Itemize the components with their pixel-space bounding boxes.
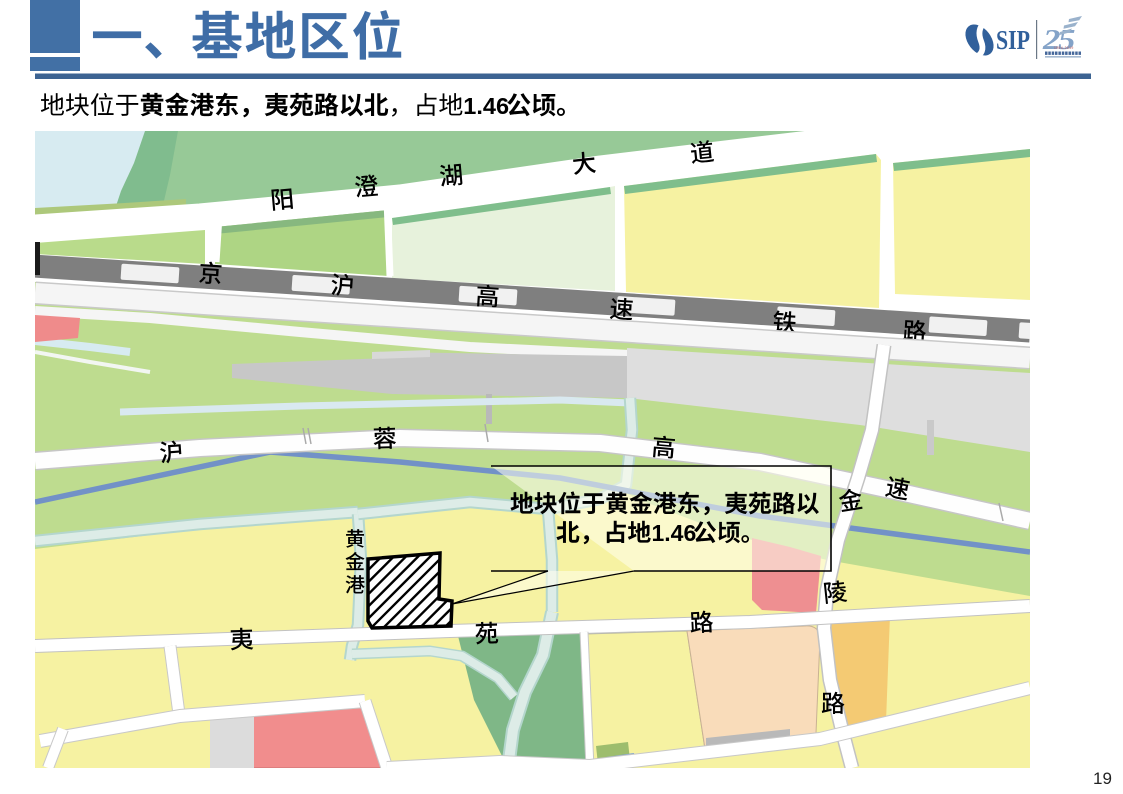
svg-text:19: 19: [1093, 769, 1112, 788]
svg-text:25: 25: [1042, 24, 1075, 56]
svg-text:1.46: 1.46: [463, 93, 509, 119]
svg-text:1994-2019: 1994-2019: [1054, 46, 1074, 50]
svg-text:SIP: SIP: [996, 25, 1030, 55]
svg-text:1.46: 1.46: [652, 520, 697, 546]
